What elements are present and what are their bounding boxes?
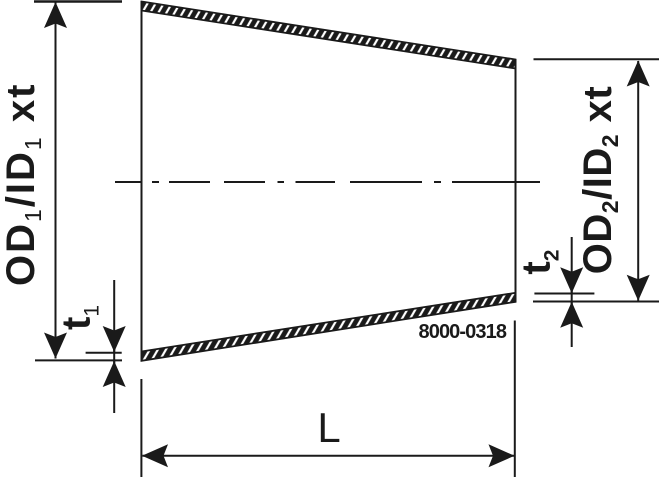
svg-text:OD2/ID2 xt: OD2/ID2 xt bbox=[576, 86, 623, 274]
svg-text:OD1/ID1 xt: OD1/ID1 xt bbox=[0, 83, 46, 286]
svg-text:L: L bbox=[317, 404, 340, 451]
svg-text:8000-0318: 8000-0318 bbox=[419, 321, 507, 343]
